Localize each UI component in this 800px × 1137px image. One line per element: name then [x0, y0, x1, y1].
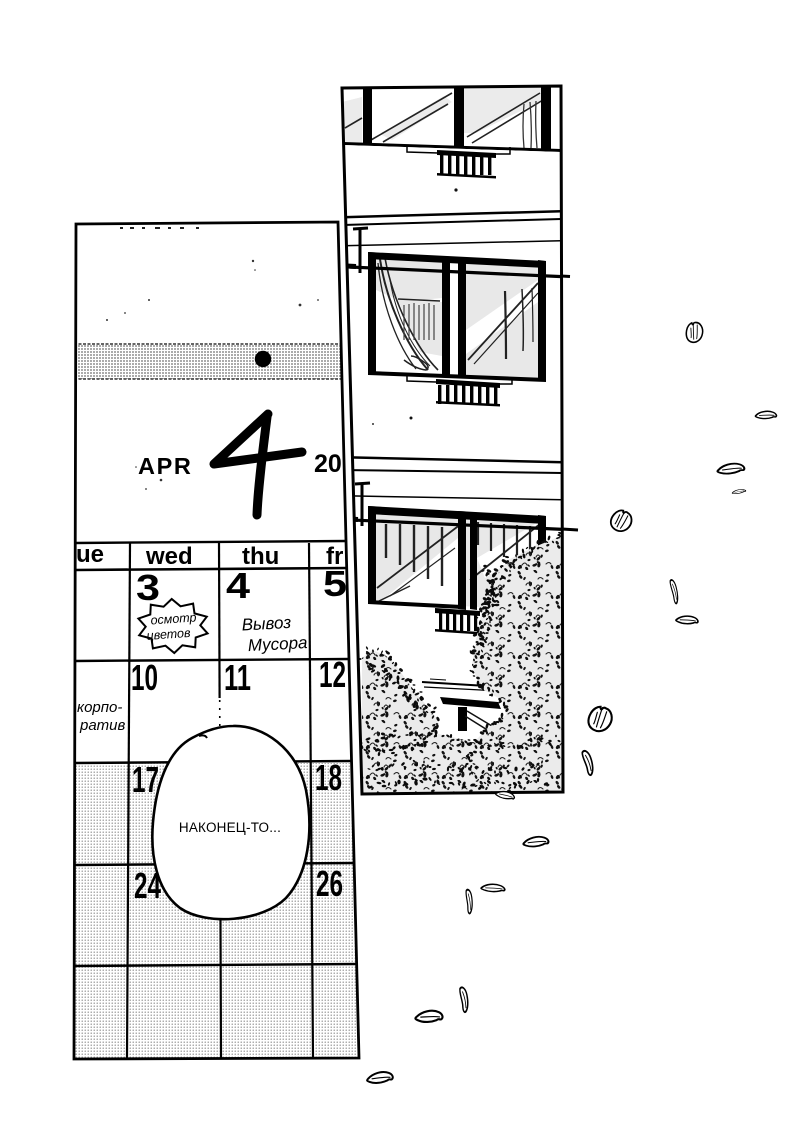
- svg-text:ратив: ратив: [79, 717, 126, 734]
- svg-text:Вывоз: Вывоз: [241, 613, 292, 635]
- svg-text:10: 10: [131, 657, 158, 698]
- svg-text:17: 17: [132, 759, 159, 800]
- svg-text:3: 3: [136, 567, 160, 608]
- svg-text:26: 26: [316, 863, 343, 904]
- svg-text:20: 20: [314, 450, 342, 478]
- svg-text:12: 12: [319, 654, 346, 695]
- svg-text:НАКОНЕЦ-ТО...: НАКОНЕЦ-ТО...: [179, 820, 281, 835]
- svg-text:ue: ue: [76, 541, 104, 568]
- svg-text:корпо-: корпо-: [77, 699, 122, 716]
- svg-text:18: 18: [315, 757, 342, 798]
- svg-text:5: 5: [323, 563, 347, 604]
- svg-text:11: 11: [224, 657, 251, 698]
- svg-text:APR: APR: [138, 453, 192, 479]
- svg-text:4: 4: [226, 565, 250, 606]
- svg-text:Мусора: Мусора: [247, 633, 308, 655]
- svg-text:wed: wed: [145, 543, 193, 570]
